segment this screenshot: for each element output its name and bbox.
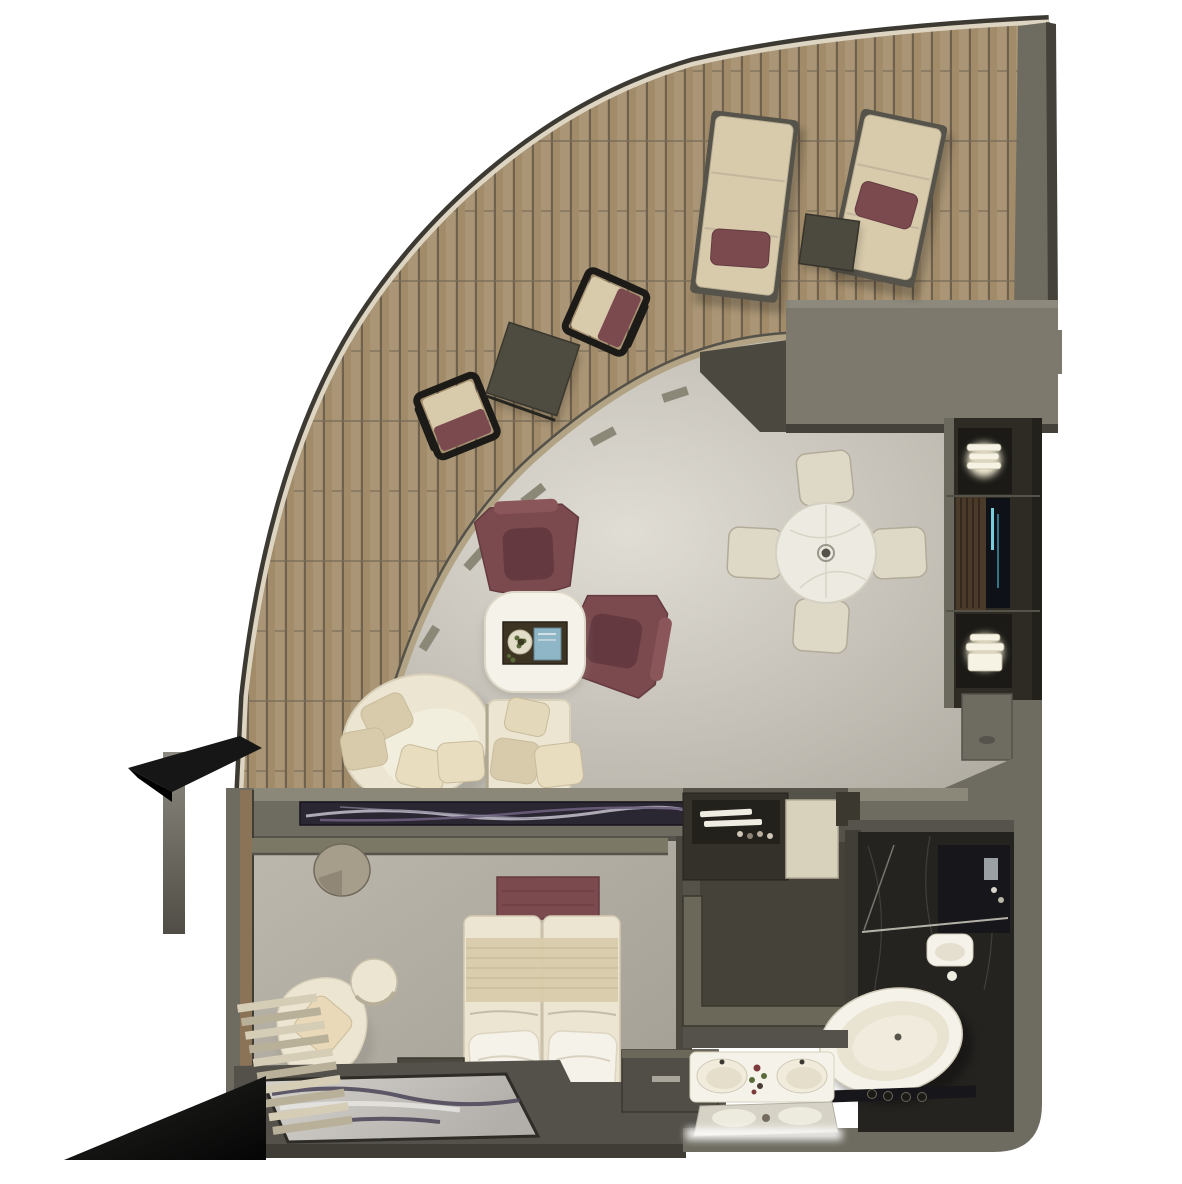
shower-valve [984,858,998,880]
armchair-north [474,497,583,596]
drawer-slot [652,1076,680,1082]
shower-bottle [991,887,997,893]
entry-roof-tab [1040,330,1062,374]
tv-glow-streak-2 [997,514,999,588]
lounger-pillow [710,229,770,269]
bathroom-top-wall [848,820,1014,834]
book [534,628,561,660]
floor-plan-canvas [0,0,1182,1184]
mirror-reflection-left [712,1109,756,1127]
tub-drain [895,1034,902,1041]
walk-in-closet [676,788,860,1050]
vanity [690,1052,834,1102]
table-hub [822,549,831,558]
shower-bottle-2 [998,897,1004,903]
entry-roof-highlight [786,300,1058,308]
armchair-seat [502,527,555,582]
media-cabinet-back [1032,418,1042,708]
artwork-strip [300,802,712,825]
mirror-reflection-right [778,1107,822,1125]
entry-roof [786,300,1058,432]
side-table-top [799,214,859,271]
lounger-side-table [798,214,862,276]
media-wall-unit [944,418,1042,708]
coffee-table [483,592,587,696]
faucet-left [720,1060,725,1065]
vanity-back-wall [683,1030,848,1048]
bedroom-bottom-wall [240,1144,686,1158]
foot-bench [497,877,599,919]
dining-chair-south [792,598,849,654]
deck-right-wall-edge [1046,22,1058,312]
table-lamp-top [967,444,1001,469]
dining-chair-east [871,527,928,580]
suite-floor-plan [0,0,1182,1184]
storage-cube [786,800,838,878]
armchair-seat [584,612,644,670]
entry-vestibule [786,300,1062,433]
faucet-right [800,1060,805,1065]
bedroom [226,788,726,1158]
wall-drawer-panel [962,694,1012,760]
drawer-handle [979,736,995,744]
vanity-glow [686,1128,842,1140]
dining-chair-north [795,449,854,506]
tv-glow-streak [991,508,994,550]
toilet-accessory [947,971,957,981]
dining-chair-west [727,527,784,580]
wall-desk [252,838,668,854]
media-cabinet-front-edge [944,418,954,708]
right-wall-band [1012,700,1042,840]
